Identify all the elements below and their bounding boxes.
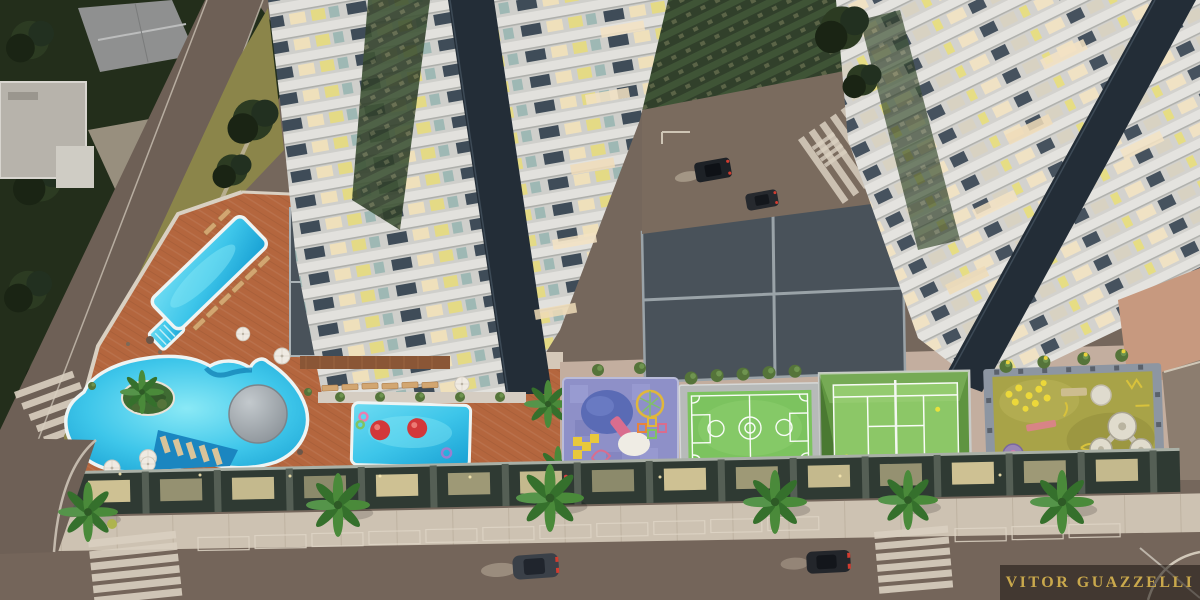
flat-roof-house bbox=[0, 82, 94, 188]
round-canopy bbox=[229, 385, 287, 443]
artist-credit: VITOR GUAZZELLI bbox=[1006, 574, 1195, 592]
scene-canvas bbox=[0, 0, 1200, 600]
aerial-rendering: VITOR GUAZZELLI bbox=[0, 0, 1200, 600]
leisure-pool bbox=[66, 356, 312, 482]
slide-landing bbox=[618, 432, 650, 456]
log-bench bbox=[1061, 388, 1087, 397]
sand-circle bbox=[1091, 385, 1112, 406]
kids-pool bbox=[351, 402, 471, 467]
watermark-bar: VITOR GUAZZELLI bbox=[1000, 565, 1200, 600]
